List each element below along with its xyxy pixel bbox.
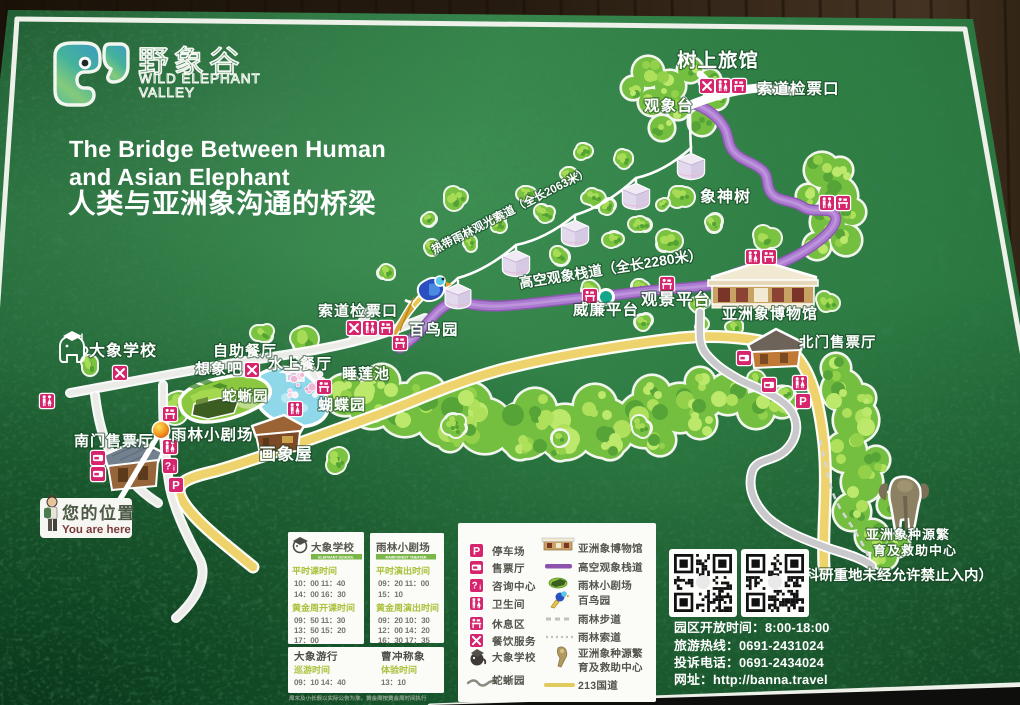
svg-text:雨林索道: 雨林索道 — [578, 631, 621, 644]
svg-text:大象学校: 大象学校 — [492, 651, 536, 664]
svg-text:蛇蜥园: 蛇蜥园 — [222, 388, 269, 405]
svg-text:i: i — [173, 463, 175, 472]
svg-text:树上旅馆: 树上旅馆 — [677, 50, 759, 72]
svg-text:13：50 15：20: 13：50 15：20 — [294, 626, 346, 635]
svg-text:卫生间: 卫生间 — [492, 598, 525, 611]
svg-text:睡莲池: 睡莲池 — [342, 366, 390, 383]
svg-text:雨林小剧场: 雨林小剧场 — [171, 426, 254, 444]
svg-text:北门售票厅: 北门售票厅 — [799, 334, 877, 351]
svg-text:您的位置: 您的位置 — [62, 504, 136, 523]
svg-text:09：10 14：40: 09：10 14：40 — [294, 678, 346, 687]
svg-text:黄金周演出时间: 黄金周演出时间 — [376, 603, 439, 613]
svg-text:雨林小剧场: 雨林小剧场 — [376, 541, 430, 554]
svg-text:You are here: You are here — [62, 524, 131, 536]
svg-text:i: i — [479, 585, 481, 592]
svg-text:?: ? — [165, 461, 171, 472]
svg-text:RAINFOREST THEATER: RAINFOREST THEATER — [385, 556, 426, 560]
svg-text:蛇蜥园: 蛇蜥园 — [492, 674, 525, 687]
svg-text:育及救助中心: 育及救助中心 — [578, 661, 643, 674]
svg-text:大象游行: 大象游行 — [294, 650, 338, 663]
svg-text:百鸟园: 百鸟园 — [578, 594, 610, 607]
svg-text:索道检票口: 索道检票口 — [757, 80, 840, 98]
svg-text:13：10: 13：10 — [381, 678, 407, 687]
svg-text:P: P — [473, 545, 480, 557]
svg-text:09：20 10：30: 09：20 10：30 — [378, 616, 430, 625]
svg-text:蝴蝶园: 蝴蝶园 — [318, 397, 366, 414]
svg-text:水上餐厅: 水上餐厅 — [268, 356, 332, 373]
svg-text:10：00 11：40: 10：00 11：40 — [294, 579, 346, 588]
svg-text:黄金周开课时间: 黄金周开课时间 — [292, 603, 355, 613]
svg-text:想象吧: 想象吧 — [194, 361, 243, 378]
svg-text:售票厅: 售票厅 — [492, 562, 525, 575]
svg-text:ELEPHANT SCHOOL: ELEPHANT SCHOOL — [318, 556, 355, 560]
svg-text:?: ? — [472, 581, 478, 592]
svg-text:VALLEY: VALLEY — [139, 85, 195, 100]
svg-text:12：00 14：20: 12：00 14：20 — [378, 626, 430, 635]
svg-text:P: P — [172, 480, 180, 492]
svg-text:休息区: 休息区 — [491, 618, 525, 631]
svg-text:亚洲象博物馆: 亚洲象博物馆 — [722, 305, 818, 323]
svg-text:The Bridge Between Human: The Bridge Between Human — [69, 136, 386, 162]
svg-text:画象屋: 画象屋 — [259, 445, 313, 464]
svg-text:WILD ELEPHANT: WILD ELEPHANT — [139, 71, 261, 86]
svg-text:亚洲象博物馆: 亚洲象博物馆 — [578, 542, 643, 555]
svg-text:and Asian Elephant: and Asian Elephant — [69, 164, 290, 190]
svg-text:平时课时间: 平时课时间 — [292, 566, 337, 576]
svg-text:育及救助中心: 育及救助中心 — [873, 543, 957, 558]
svg-text:大象学校: 大象学校 — [311, 541, 354, 554]
svg-text:213国道: 213国道 — [578, 679, 618, 692]
svg-text:大象学校: 大象学校 — [89, 342, 157, 360]
svg-text:15：10: 15：10 — [378, 590, 404, 599]
svg-text:南门售票厅: 南门售票厅 — [74, 433, 154, 450]
svg-text:体验时间: 体验时间 — [381, 665, 417, 675]
svg-text:停车场: 停车场 — [492, 545, 525, 558]
svg-text:09：50 11：30: 09：50 11：30 — [294, 616, 346, 625]
svg-text:雨林步道: 雨林步道 — [578, 613, 621, 626]
svg-text:平时演出时间: 平时演出时间 — [376, 566, 430, 576]
svg-text:园区开放时间：8:00-18:00: 园区开放时间：8:00-18:00 — [674, 620, 830, 635]
svg-text:亚洲象种源繁: 亚洲象种源繁 — [578, 647, 643, 660]
svg-text:曹冲称象: 曹冲称象 — [381, 650, 425, 663]
svg-text:09：20 11：00: 09：20 11：00 — [378, 579, 430, 588]
svg-text:观景平台: 观景平台 — [641, 290, 711, 309]
svg-text:餐饮服务: 餐饮服务 — [491, 635, 536, 648]
svg-text:亚洲象种源繁: 亚洲象种源繁 — [866, 527, 950, 542]
svg-text:（科研重地未经允许禁止入内）: （科研重地未经允许禁止入内） — [790, 567, 993, 584]
svg-text:投诉电话：0691-2434024: 投诉电话：0691-2434024 — [674, 655, 825, 670]
svg-text:人类与亚洲象沟通的桥梁: 人类与亚洲象沟通的桥梁 — [68, 188, 376, 219]
svg-text:雨林小剧场: 雨林小剧场 — [578, 579, 632, 592]
svg-text:象神树: 象神树 — [700, 188, 751, 206]
svg-text:百鸟园: 百鸟园 — [409, 321, 459, 339]
svg-text:14：00 16：30: 14：00 16：30 — [294, 590, 346, 599]
svg-text:16：30 17：35: 16：30 17：35 — [378, 636, 430, 645]
svg-text:P: P — [799, 396, 807, 408]
svg-text:咨询中心: 咨询中心 — [492, 580, 536, 593]
svg-text:巡游时间: 巡游时间 — [294, 665, 330, 675]
svg-text:17：00: 17：00 — [294, 636, 320, 645]
svg-text:索道检票口: 索道检票口 — [318, 302, 398, 320]
svg-text:网址：http://banna.travel: 网址：http://banna.travel — [674, 672, 828, 687]
svg-text:高空观象栈道: 高空观象栈道 — [578, 561, 643, 574]
svg-text:周末及小长假以实际公告为准，黄金周按黄金周时间执行: 周末及小长假以实际公告为准，黄金周按黄金周时间执行 — [289, 695, 427, 702]
svg-text:威廉平台: 威廉平台 — [573, 301, 639, 319]
svg-text:旅游热线：0691-2431024: 旅游热线：0691-2431024 — [674, 638, 825, 653]
svg-text:观象台: 观象台 — [644, 97, 694, 115]
